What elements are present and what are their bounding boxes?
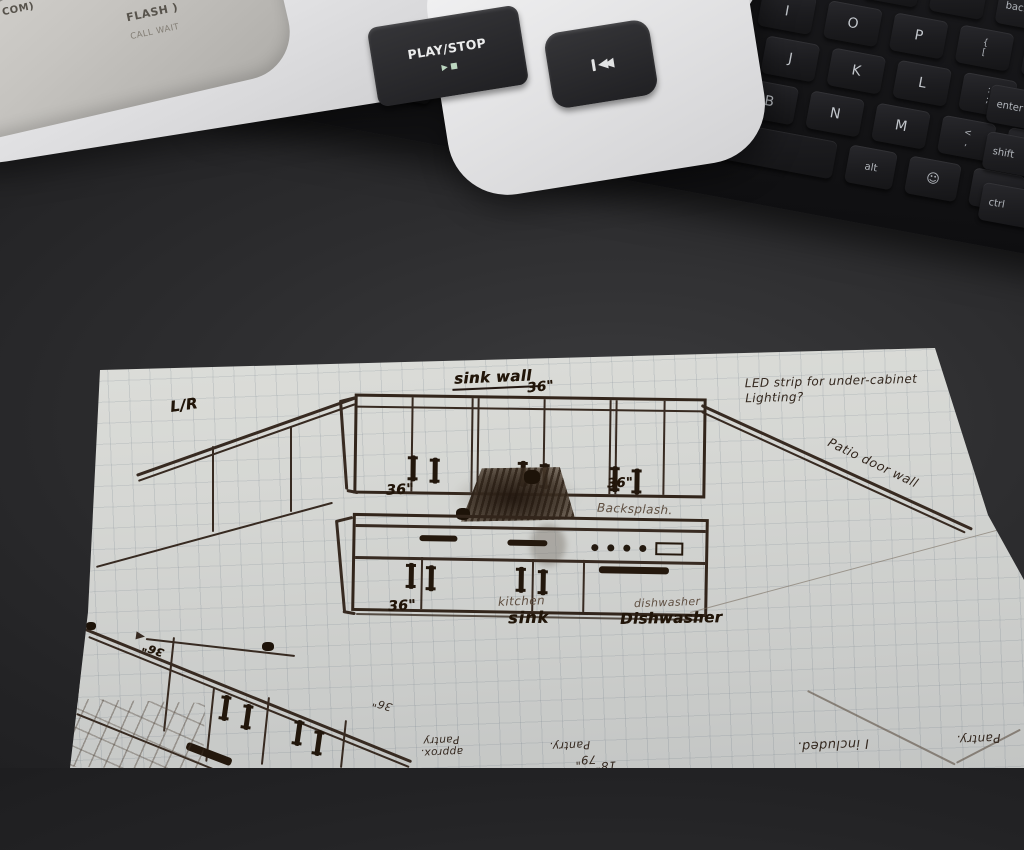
upper-dim-right: 36" <box>607 475 634 491</box>
flipped-note-approx-pantry: approx. Pantry <box>419 733 463 759</box>
dishwasher-button <box>591 544 598 551</box>
flipped-dim-18: 18" <box>595 759 617 774</box>
dishwasher-handle <box>599 566 669 574</box>
sink-label: sink <box>508 608 549 628</box>
flipped-note-included: I included. <box>797 735 869 753</box>
desk-photo: { "phone": { "com_fragment": "COM", "fla… <box>0 0 1024 768</box>
sink-wall-title: sink wall <box>452 366 539 391</box>
lower-dim: 36" <box>388 597 417 614</box>
cabinet-handle <box>634 468 639 494</box>
ink-blob <box>524 470 540 484</box>
skip-back-icon: ◀◀ <box>591 55 611 73</box>
left-wall-line-b <box>290 426 292 512</box>
cabinet-handle <box>410 455 415 481</box>
corner-mark: L/R <box>169 394 199 416</box>
led-note: LED strip for under-cabinet Lighting? <box>745 372 918 407</box>
upper-dim-left: 36" <box>386 481 415 498</box>
dishwasher-label: Dishwasher <box>620 608 723 628</box>
flipped-dim-79: 79" <box>575 753 597 768</box>
backsplash-label: Backsplash. <box>597 501 673 518</box>
dishwasher-button <box>639 545 646 552</box>
kitchen-label: kitchen <box>498 593 545 609</box>
cabinet-handle <box>540 569 545 595</box>
ink-blob <box>86 622 96 630</box>
cabinet-handle <box>519 567 524 593</box>
cabinet-handle <box>432 458 437 484</box>
flipped-note-pantry: Pantry. <box>549 738 591 753</box>
cabinet-handle <box>429 565 434 591</box>
cabinet-handle <box>409 563 414 589</box>
drawer-handle <box>507 540 547 547</box>
dishwasher-button <box>623 545 630 552</box>
play-stop-label: PLAY/STOP <box>407 35 488 62</box>
flipped-note-pantry-2: Pantry. <box>956 731 1001 747</box>
play-stop-icons: ▶ ■ <box>441 61 458 72</box>
sink-wall-dim: 36" <box>526 378 555 397</box>
dishwasher-button <box>607 544 614 551</box>
drawer-handle <box>419 535 457 542</box>
ink-blob <box>262 642 274 651</box>
dishwasher-display <box>655 542 683 555</box>
left-wall-line-a <box>212 446 214 532</box>
